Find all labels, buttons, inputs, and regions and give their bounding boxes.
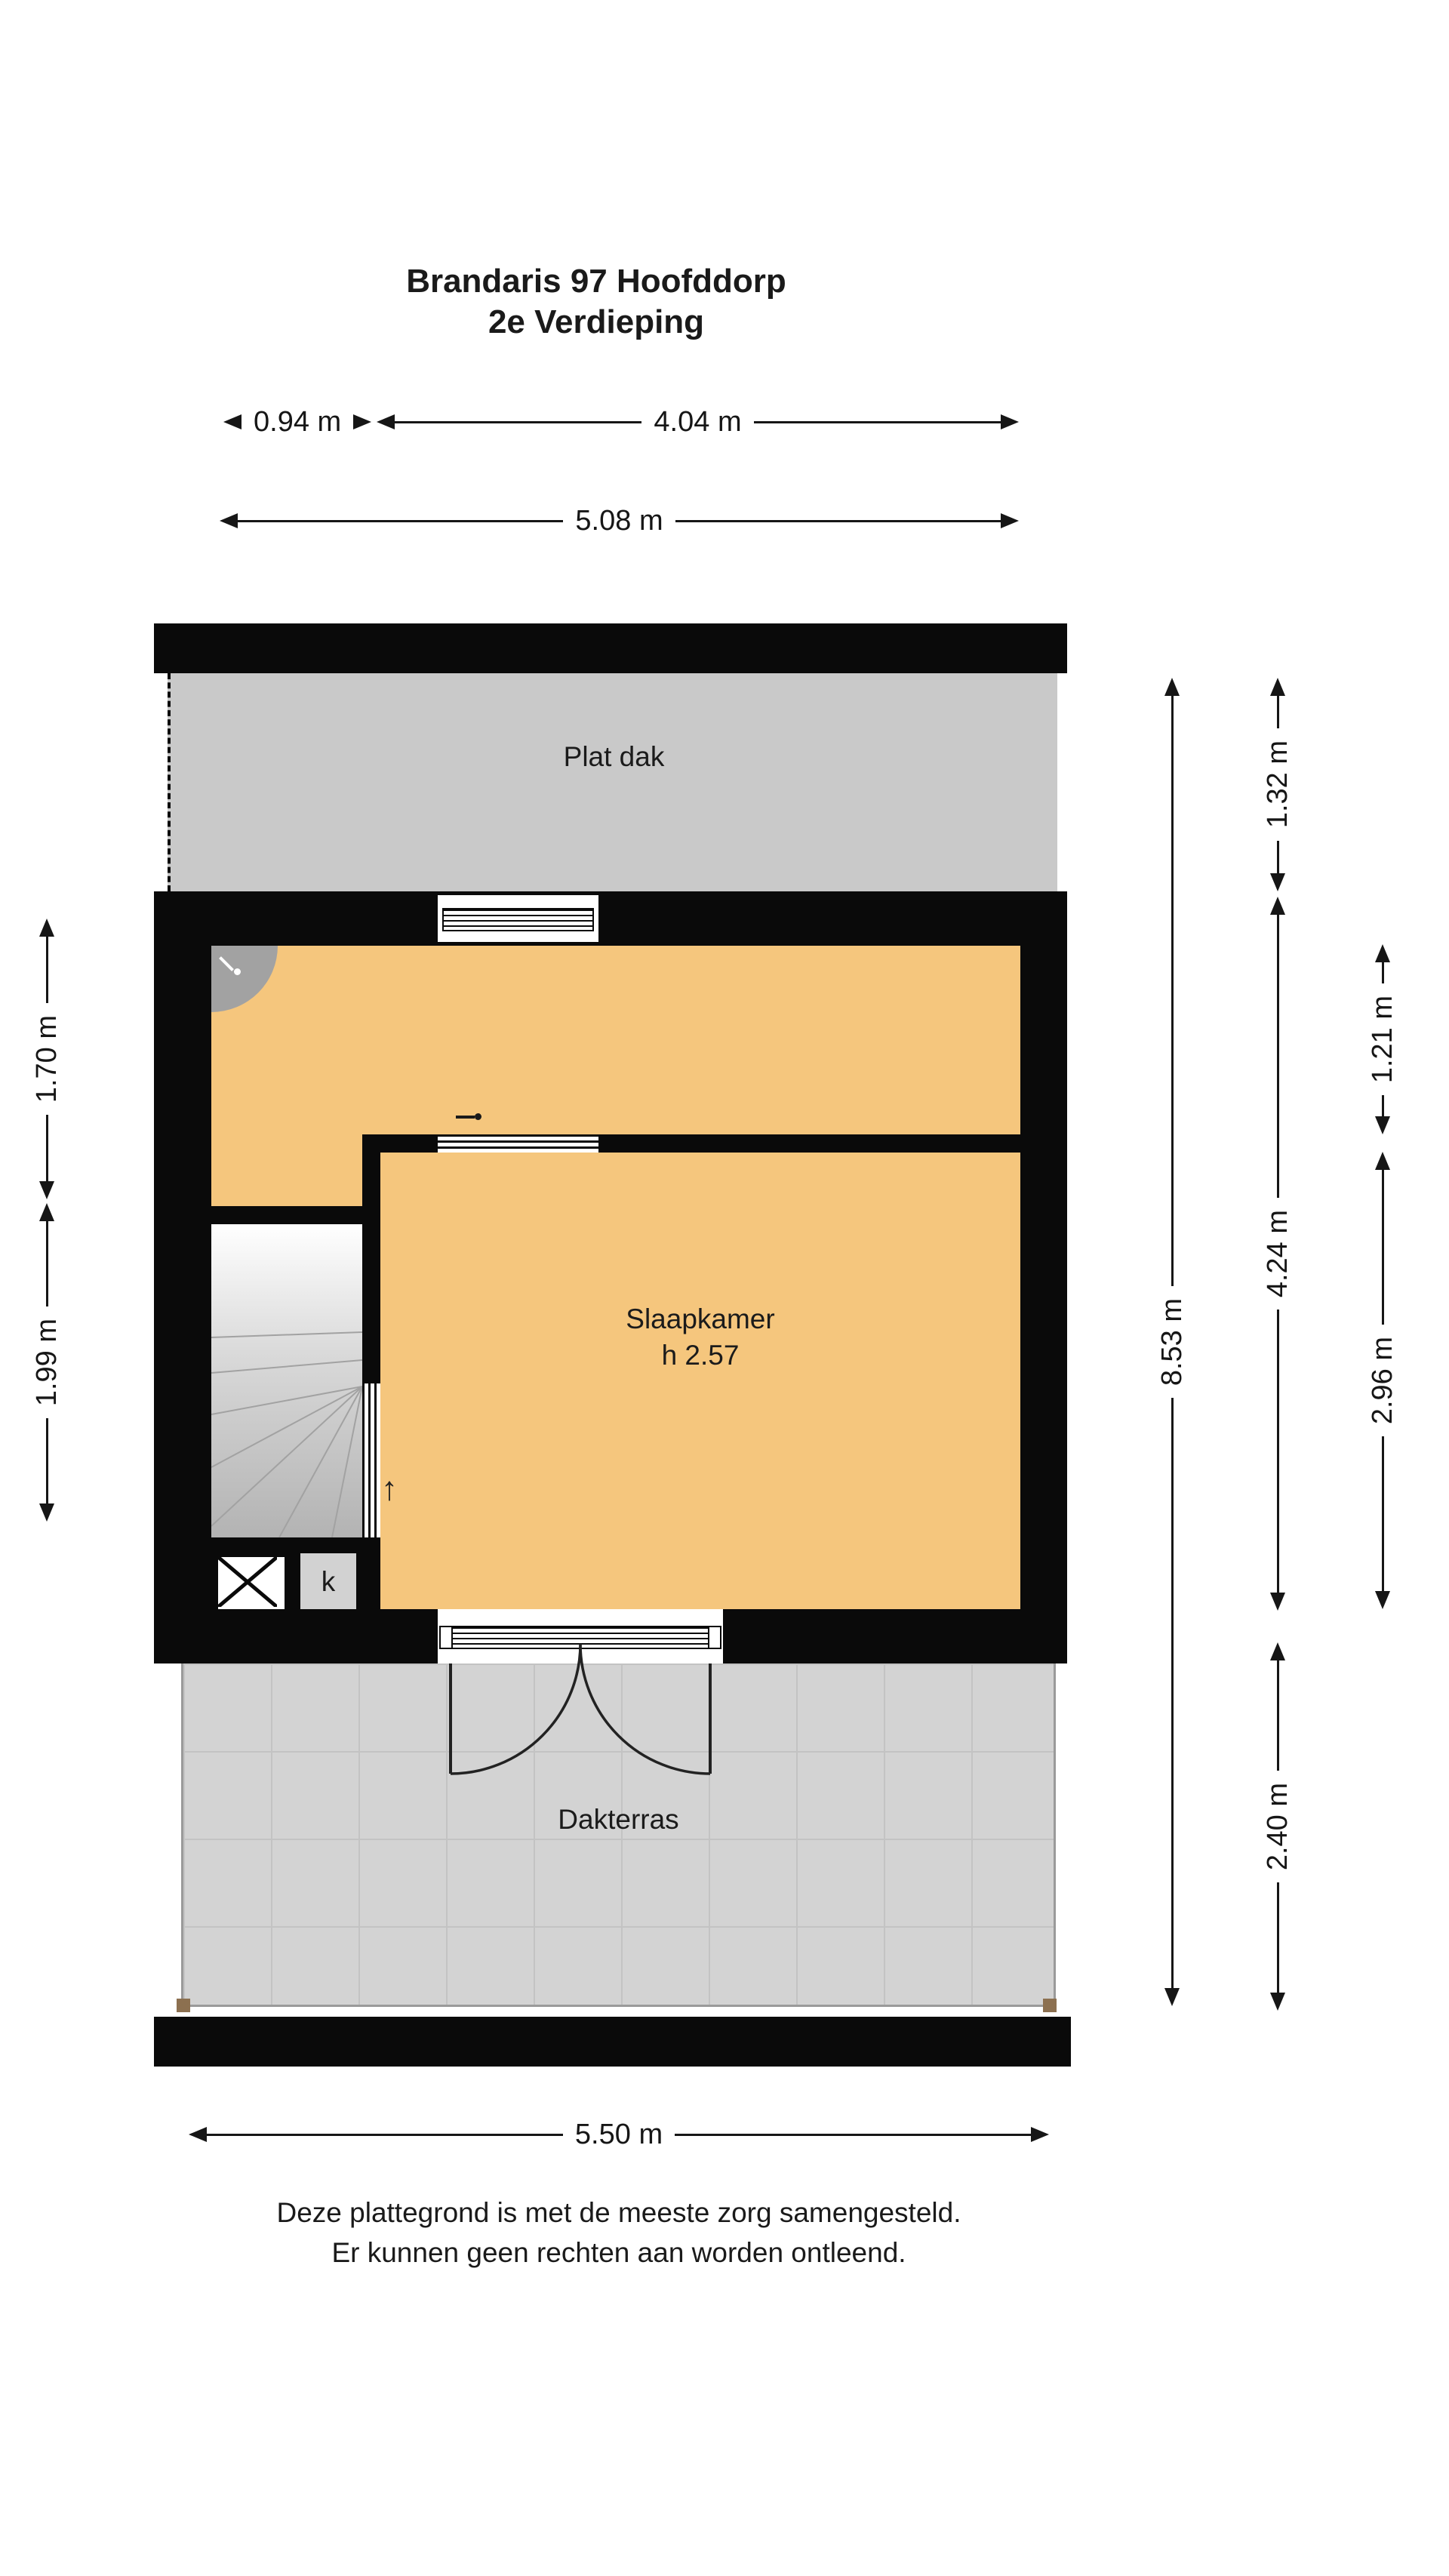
terrace-door-opening (438, 1609, 723, 1663)
door-hinge-left (439, 1626, 453, 1649)
arrowhead-right-icon (1031, 2127, 1049, 2142)
landing-area (211, 946, 1020, 1134)
stairs-graphic (211, 1224, 362, 1537)
arrowhead-up-icon (1375, 944, 1390, 962)
flat-roof-area: Plat dak (168, 673, 1057, 891)
stairs-up-arrow-icon: ↑ (381, 1470, 398, 1508)
arrowhead-left-icon (377, 414, 395, 429)
closet-label: k (321, 1566, 336, 1598)
shower-icon (219, 956, 234, 971)
shower-head-icon (234, 968, 241, 975)
arrowhead-down-icon (1270, 873, 1285, 891)
arrowhead-left-icon (223, 414, 241, 429)
disclaimer: Deze plattegrond is met de meeste zorg s… (113, 2193, 1124, 2273)
arrowhead-down-icon (39, 1503, 54, 1522)
terrace-post-left (177, 1999, 190, 2012)
arrowhead-down-icon (1375, 1116, 1390, 1134)
terrace-post-right (1043, 1999, 1057, 2012)
dim-right-landing: 1.21 m (1363, 944, 1402, 1134)
flat-roof-label: Plat dak (564, 741, 665, 773)
bedroom-area: Slaapkamer h 2.57 (380, 1153, 1020, 1609)
arrowhead-down-icon (1375, 1591, 1390, 1609)
dim-right-bedroom-label: 2.96 m (1367, 1325, 1399, 1436)
dim-bottom-total: 5.50 m (189, 2118, 1049, 2151)
dim-top-left-label: 0.94 m (241, 406, 353, 439)
dim-top-left: 0.94 m (223, 405, 371, 439)
swing-direction-icon (456, 1111, 483, 1123)
dim-right-total-label: 8.53 m (1156, 1286, 1189, 1398)
plan-title-address: Brandaris 97 Hoofddorp (151, 261, 1041, 302)
arrowhead-up-icon (39, 919, 54, 937)
arrowhead-left-icon (189, 2127, 207, 2142)
closet: k (300, 1553, 356, 1611)
arrowhead-up-icon (1270, 897, 1285, 915)
dim-right-interior-label: 4.24 m (1262, 1198, 1294, 1310)
outer-wall-bottom (154, 2017, 1071, 2067)
disclaimer-line2: Er kunnen geen rechten aan worden ontlee… (113, 2233, 1124, 2273)
door-hinge-right (708, 1626, 721, 1649)
dim-top-total-label: 5.08 m (563, 505, 675, 537)
arrowhead-right-icon (1001, 414, 1019, 429)
arrowhead-up-icon (1164, 678, 1180, 696)
outer-wall-left (154, 891, 211, 1663)
arrowhead-right-icon (353, 414, 371, 429)
stairwell-top-wall (211, 1206, 362, 1224)
dim-left-stairs: 1.99 m (27, 1203, 66, 1522)
plan-title: Brandaris 97 Hoofddorp 2e Verdieping (151, 261, 1041, 342)
stair-railing-horizontal (438, 1134, 598, 1153)
window-glazing (442, 908, 594, 931)
stairwell (211, 1224, 362, 1537)
dim-right-terrace-label: 2.40 m (1262, 1771, 1294, 1882)
dim-right-landing-label: 1.21 m (1367, 983, 1399, 1095)
dim-right-flat-roof-label: 1.32 m (1262, 728, 1294, 840)
cross-icon (218, 1557, 277, 1607)
dim-right-total: 8.53 m (1152, 678, 1192, 2006)
arrowhead-up-icon (1270, 1642, 1285, 1660)
arrowhead-right-icon (1001, 513, 1019, 528)
window-landing (438, 895, 598, 942)
dim-left-stairs-label: 1.99 m (31, 1306, 63, 1418)
terrace-area: Dakterras (181, 1663, 1056, 2007)
arrowhead-up-icon (1375, 1152, 1390, 1170)
wall-rooms-top (154, 891, 1067, 946)
dim-right-terrace: 2.40 m (1258, 1642, 1297, 2011)
stairwell-wall (362, 1134, 380, 1383)
arrowhead-down-icon (1270, 1993, 1285, 2011)
terrace-label: Dakterras (558, 1804, 678, 1836)
dim-left-landing-label: 1.70 m (31, 1003, 63, 1115)
plan-title-floor: 2e Verdieping (151, 302, 1041, 343)
disclaimer-line1: Deze plattegrond is met de meeste zorg s… (113, 2193, 1124, 2233)
dim-right-flat-roof: 1.32 m (1258, 678, 1297, 891)
interior-wall (598, 1134, 1020, 1153)
dim-right-bedroom: 2.96 m (1363, 1152, 1402, 1609)
dim-right-interior: 4.24 m (1258, 897, 1297, 1611)
dim-top-total: 5.08 m (220, 504, 1019, 537)
dim-bottom-total-label: 5.50 m (563, 2119, 675, 2151)
floorplan-page: { "title": { "line1": "Brandaris 97 Hoof… (0, 0, 1449, 2576)
bedroom-label: Slaapkamer (626, 1303, 774, 1335)
bedroom-height-label: h 2.57 (662, 1340, 740, 1371)
arrowhead-up-icon (1270, 678, 1285, 696)
dim-top-main: 4.04 m (377, 405, 1019, 439)
outer-wall-right (1020, 891, 1067, 1663)
arrowhead-left-icon (220, 513, 238, 528)
arrowhead-down-icon (39, 1181, 54, 1199)
arrowhead-down-icon (1164, 1988, 1180, 2006)
landing-area-extension (211, 1134, 362, 1206)
dim-top-main-label: 4.04 m (641, 406, 753, 439)
door-glazing (450, 1626, 711, 1649)
dim-left-landing: 1.70 m (27, 919, 66, 1199)
arrowhead-up-icon (39, 1203, 54, 1221)
shower-corner (211, 946, 278, 1012)
outer-wall-top (154, 623, 1067, 673)
arrowhead-down-icon (1270, 1593, 1285, 1611)
